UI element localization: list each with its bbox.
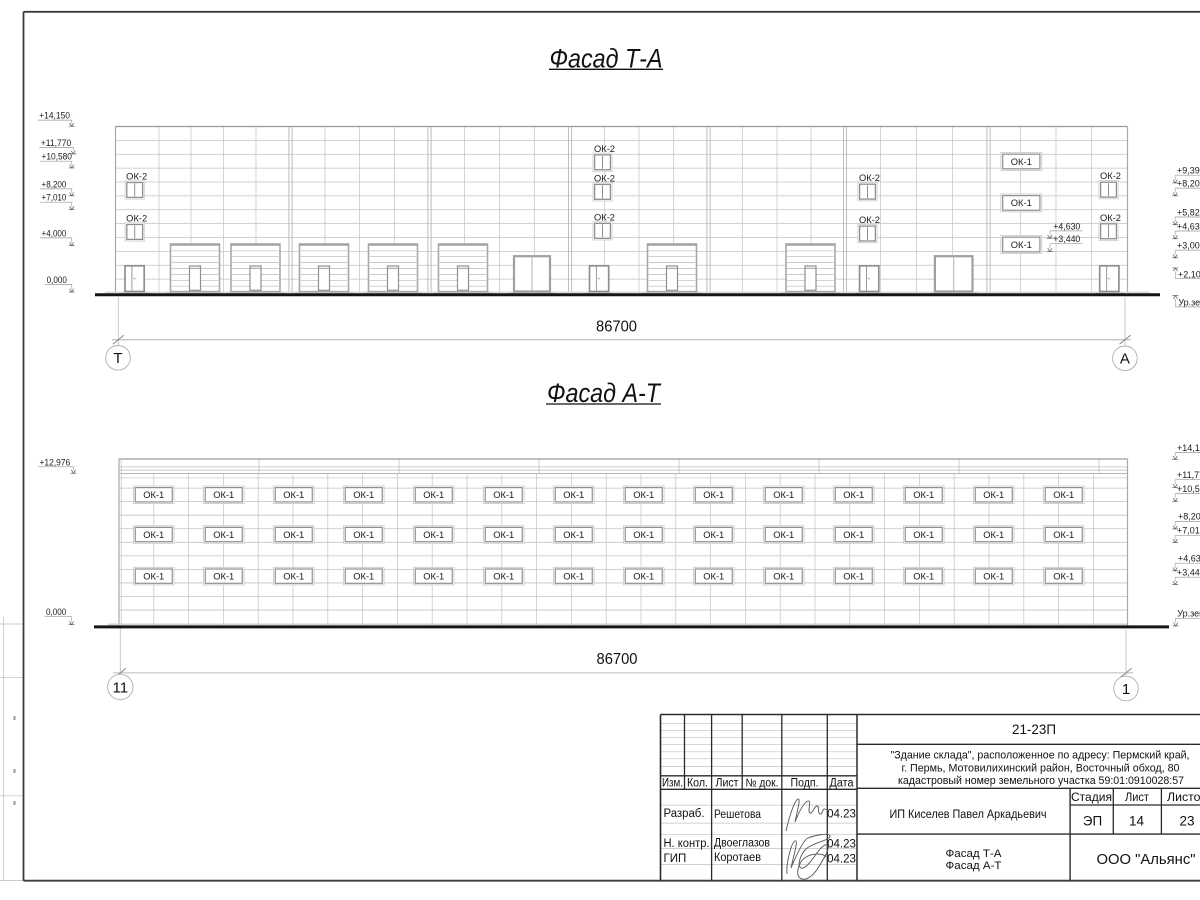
- svg-text:+3,440: +3,440: [1053, 234, 1080, 244]
- svg-text:ОК-1: ОК-1: [843, 530, 864, 540]
- svg-text:0,000: 0,000: [46, 607, 66, 617]
- svg-text:86700: 86700: [597, 651, 638, 668]
- svg-text:ОК-1: ОК-1: [213, 571, 234, 581]
- svg-text:Подп.: Подп.: [791, 778, 819, 790]
- svg-text:ОК-1: ОК-1: [213, 530, 234, 540]
- svg-text:ОК-1: ОК-1: [1053, 490, 1074, 500]
- svg-text:86700: 86700: [596, 319, 637, 336]
- svg-text:ОК-1: ОК-1: [423, 530, 444, 540]
- svg-text:ОК-1: ОК-1: [1011, 240, 1032, 250]
- svg-text:Кол.: Кол.: [687, 778, 708, 790]
- svg-text:ОК-1: ОК-1: [563, 530, 584, 540]
- svg-text:+8,200: +8,200: [1177, 178, 1200, 188]
- svg-text:ОК-2: ОК-2: [594, 173, 615, 183]
- svg-text:ОК-1: ОК-1: [423, 490, 444, 500]
- svg-text:ОК-2: ОК-2: [859, 173, 880, 183]
- svg-text:04.23: 04.23: [827, 854, 856, 866]
- svg-text:ОК-1: ОК-1: [1011, 157, 1032, 167]
- svg-text:ОК-1: ОК-1: [773, 530, 794, 540]
- svg-text:Фасад А-Т: Фасад А-Т: [547, 378, 662, 408]
- svg-text:ОК-1: ОК-1: [563, 490, 584, 500]
- svg-text:ГИП: ГИП: [664, 853, 687, 865]
- svg-text:14: 14: [1129, 814, 1145, 829]
- svg-text:А: А: [1120, 351, 1130, 368]
- svg-text:г. Пермь, Мотовилихинский райо: г. Пермь, Мотовилихинский район, Восточн…: [902, 762, 1180, 774]
- svg-text:Двоеглазов: Двоеглазов: [714, 838, 770, 850]
- svg-text:ЭП: ЭП: [1083, 814, 1102, 829]
- svg-text:ОК-1: ОК-1: [633, 490, 654, 500]
- svg-text:ОК-2: ОК-2: [859, 215, 880, 225]
- svg-text:Стадия: Стадия: [1071, 790, 1112, 804]
- svg-text:Ур.земли: Ур.земли: [1178, 297, 1200, 307]
- svg-text:Разраб.: Разраб.: [664, 808, 705, 820]
- svg-text:ОК-2: ОК-2: [594, 212, 615, 222]
- svg-text:Изм.: Изм.: [662, 778, 683, 790]
- svg-text:ОК-1: ОК-1: [843, 490, 864, 500]
- svg-text:+5,820: +5,820: [1177, 207, 1200, 217]
- svg-text:ОК-1: ОК-1: [773, 571, 794, 581]
- svg-text:ОК-2: ОК-2: [1100, 213, 1121, 223]
- svg-text:+12,976: +12,976: [40, 457, 71, 467]
- svg-text:ОК-1: ОК-1: [423, 571, 444, 581]
- svg-text:"Здание склада", расположенное: "Здание склада", расположенное по адресу…: [891, 750, 1190, 762]
- svg-text:+7,010: +7,010: [42, 193, 67, 203]
- svg-text:+3,440: +3,440: [1177, 568, 1200, 578]
- svg-text:ОК-1: ОК-1: [1053, 571, 1074, 581]
- svg-text:+10,580: +10,580: [42, 152, 72, 162]
- svg-text:11: 11: [113, 680, 129, 697]
- svg-text:ОК-1: ОК-1: [1053, 530, 1074, 540]
- svg-text:+8,200: +8,200: [42, 179, 67, 189]
- svg-text:Фасад Т-А: Фасад Т-А: [946, 848, 1002, 860]
- svg-text:ОК-1: ОК-1: [843, 571, 864, 581]
- svg-text:+11,770: +11,770: [1177, 470, 1200, 480]
- svg-text:ОК-1: ОК-1: [703, 530, 724, 540]
- svg-text:ОК-1: ОК-1: [983, 490, 1004, 500]
- svg-text:Лист: Лист: [716, 778, 740, 790]
- svg-text:+4,630: +4,630: [1178, 554, 1200, 564]
- svg-text:ОК-1: ОК-1: [283, 490, 304, 500]
- svg-text:ОК-1: ОК-1: [353, 530, 374, 540]
- svg-text:ОК-1: ОК-1: [493, 571, 514, 581]
- svg-text:ОК-1: ОК-1: [913, 490, 934, 500]
- svg-text:Ур.земли: Ур.земли: [1177, 609, 1200, 619]
- svg-text:ОК-1: ОК-1: [353, 571, 374, 581]
- svg-text:04.23: 04.23: [827, 808, 856, 820]
- svg-text:+2,100: +2,100: [1178, 269, 1200, 279]
- svg-text:+14,150: +14,150: [1177, 443, 1200, 453]
- svg-text:ОК-1: ОК-1: [143, 490, 164, 500]
- svg-text:ОК-2: ОК-2: [126, 172, 147, 182]
- svg-text:№ док.: № док.: [746, 778, 779, 790]
- svg-text:Коротаев: Коротаев: [714, 852, 761, 864]
- svg-text:ОК-2: ОК-2: [594, 144, 615, 154]
- svg-text:ОК-1: ОК-1: [983, 571, 1004, 581]
- svg-text:1: 1: [1122, 681, 1130, 698]
- svg-text:ОК-1: ОК-1: [493, 530, 514, 540]
- svg-text:ОК-2: ОК-2: [1100, 171, 1121, 181]
- svg-text:ОК-1: ОК-1: [283, 530, 304, 540]
- svg-text:кадастровый номер земельного у: кадастровый номер земельного участка 59:…: [898, 775, 1184, 787]
- svg-text:ОК-1: ОК-1: [913, 530, 934, 540]
- svg-text:+3,000: +3,000: [1177, 240, 1200, 250]
- svg-text:Решетова: Решетова: [714, 809, 762, 821]
- svg-text:+9,390: +9,390: [1177, 166, 1200, 176]
- svg-text:21-23П: 21-23П: [1012, 722, 1056, 737]
- svg-text:04.23: 04.23: [827, 839, 856, 851]
- svg-text:+11,770: +11,770: [41, 138, 71, 148]
- svg-text:ОК-1: ОК-1: [283, 571, 304, 581]
- svg-text:ОК-1: ОК-1: [353, 490, 374, 500]
- svg-text:+4,000: +4,000: [42, 228, 67, 238]
- svg-text:ОК-1: ОК-1: [1011, 198, 1032, 208]
- svg-text:+14,150: +14,150: [39, 111, 70, 121]
- svg-text:+4,630: +4,630: [1177, 221, 1200, 231]
- svg-text:ИП Киселев Павел Аркадьевич: ИП Киселев Павел Аркадьевич: [890, 809, 1047, 821]
- svg-text:ОК-1: ОК-1: [703, 571, 724, 581]
- svg-text:0,000: 0,000: [47, 275, 67, 285]
- svg-text:ООО "Альянс": ООО "Альянс": [1097, 852, 1196, 868]
- svg-text:ОК-1: ОК-1: [703, 490, 724, 500]
- svg-text:ОК-1: ОК-1: [633, 571, 654, 581]
- svg-text:Лист: Лист: [1125, 790, 1150, 804]
- svg-text:Т: Т: [113, 350, 122, 367]
- svg-text:Н. контр.: Н. контр.: [664, 838, 710, 850]
- svg-text:Листов: Листов: [1167, 790, 1200, 804]
- svg-text:ОК-1: ОК-1: [143, 571, 164, 581]
- svg-text:ОК-1: ОК-1: [493, 490, 514, 500]
- svg-text:Фасад А-Т: Фасад А-Т: [946, 860, 1002, 872]
- svg-text:+10,580: +10,580: [1177, 484, 1200, 494]
- svg-text:ОК-2: ОК-2: [126, 214, 147, 224]
- svg-text:ОК-1: ОК-1: [773, 490, 794, 500]
- svg-text:ОК-1: ОК-1: [633, 530, 654, 540]
- svg-text:ОК-1: ОК-1: [983, 530, 1004, 540]
- svg-text:ОК-1: ОК-1: [213, 490, 234, 500]
- svg-text:Дата: Дата: [830, 778, 855, 790]
- svg-text:23: 23: [1179, 814, 1194, 829]
- svg-text:ОК-1: ОК-1: [563, 571, 584, 581]
- svg-text:ОК-1: ОК-1: [913, 571, 934, 581]
- svg-text:+4,630: +4,630: [1053, 221, 1080, 231]
- svg-text:ОК-1: ОК-1: [143, 530, 164, 540]
- svg-text:+7,010: +7,010: [1177, 526, 1200, 536]
- svg-text:+8,200: +8,200: [1178, 512, 1200, 522]
